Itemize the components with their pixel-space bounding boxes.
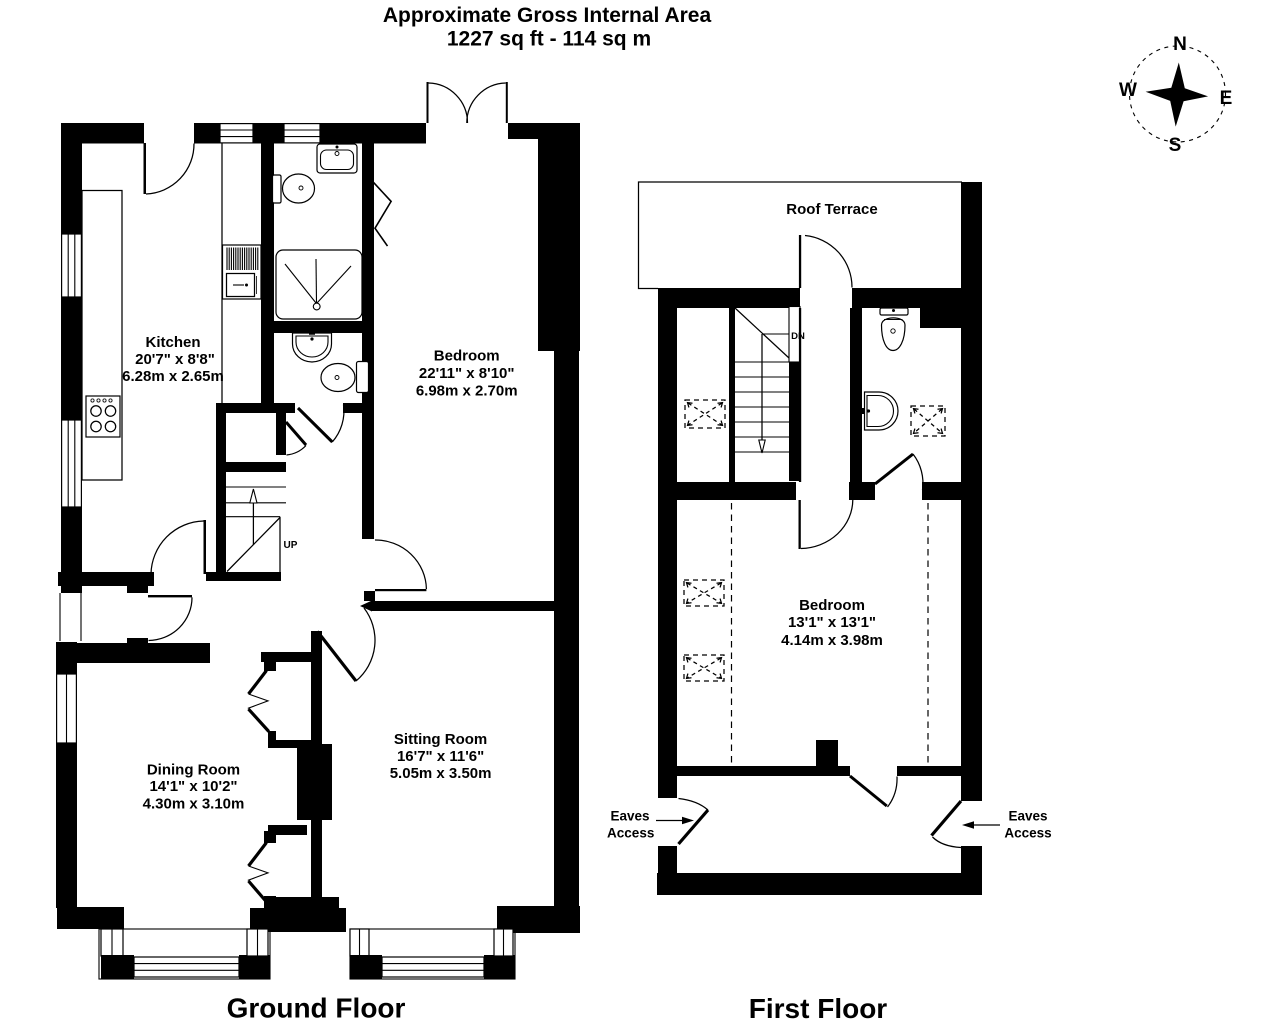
svg-text:S: S (1169, 135, 1182, 156)
svg-text:First Floor: First Floor (749, 993, 888, 1024)
svg-text:Approximate Gross Internal Are: Approximate Gross Internal Area (383, 4, 712, 27)
svg-text:Kitchen: Kitchen (145, 334, 200, 351)
svg-text:6.28m x 2.65m: 6.28m x 2.65m (122, 368, 224, 385)
svg-text:Access: Access (1004, 826, 1051, 841)
svg-text:14'1" x 10'2": 14'1" x 10'2" (149, 778, 237, 795)
svg-text:20'7" x 8'8": 20'7" x 8'8" (135, 351, 215, 368)
svg-text:Dining Room: Dining Room (147, 761, 240, 778)
svg-text:N: N (1173, 34, 1187, 55)
svg-text:13'1" x 13'1": 13'1" x 13'1" (788, 614, 876, 631)
svg-text:Bedroom: Bedroom (434, 348, 500, 365)
svg-text:Access: Access (607, 826, 654, 841)
svg-text:5.05m x 3.50m: 5.05m x 3.50m (390, 765, 492, 782)
svg-text:Sitting Room: Sitting Room (394, 731, 487, 748)
svg-text:Ground Floor: Ground Floor (227, 993, 406, 1024)
svg-text:Eaves: Eaves (610, 809, 649, 824)
svg-text:Roof Terrace: Roof Terrace (786, 201, 877, 218)
svg-text:DN: DN (791, 331, 805, 342)
svg-text:E: E (1220, 88, 1233, 109)
svg-text:Eaves: Eaves (1008, 809, 1047, 824)
svg-text:16'7" x 11'6": 16'7" x 11'6" (397, 748, 484, 765)
svg-text:UP: UP (284, 540, 298, 551)
svg-text:1227 sq ft - 114 sq m: 1227 sq ft - 114 sq m (447, 27, 651, 50)
svg-text:W: W (1119, 80, 1137, 101)
svg-text:Bedroom: Bedroom (799, 597, 865, 614)
svg-text:22'11" x 8'10": 22'11" x 8'10" (419, 365, 515, 382)
svg-text:6.98m x 2.70m: 6.98m x 2.70m (416, 382, 518, 399)
svg-text:4.30m x 3.10m: 4.30m x 3.10m (143, 795, 245, 812)
svg-text:4.14m x 3.98m: 4.14m x 3.98m (781, 632, 883, 649)
